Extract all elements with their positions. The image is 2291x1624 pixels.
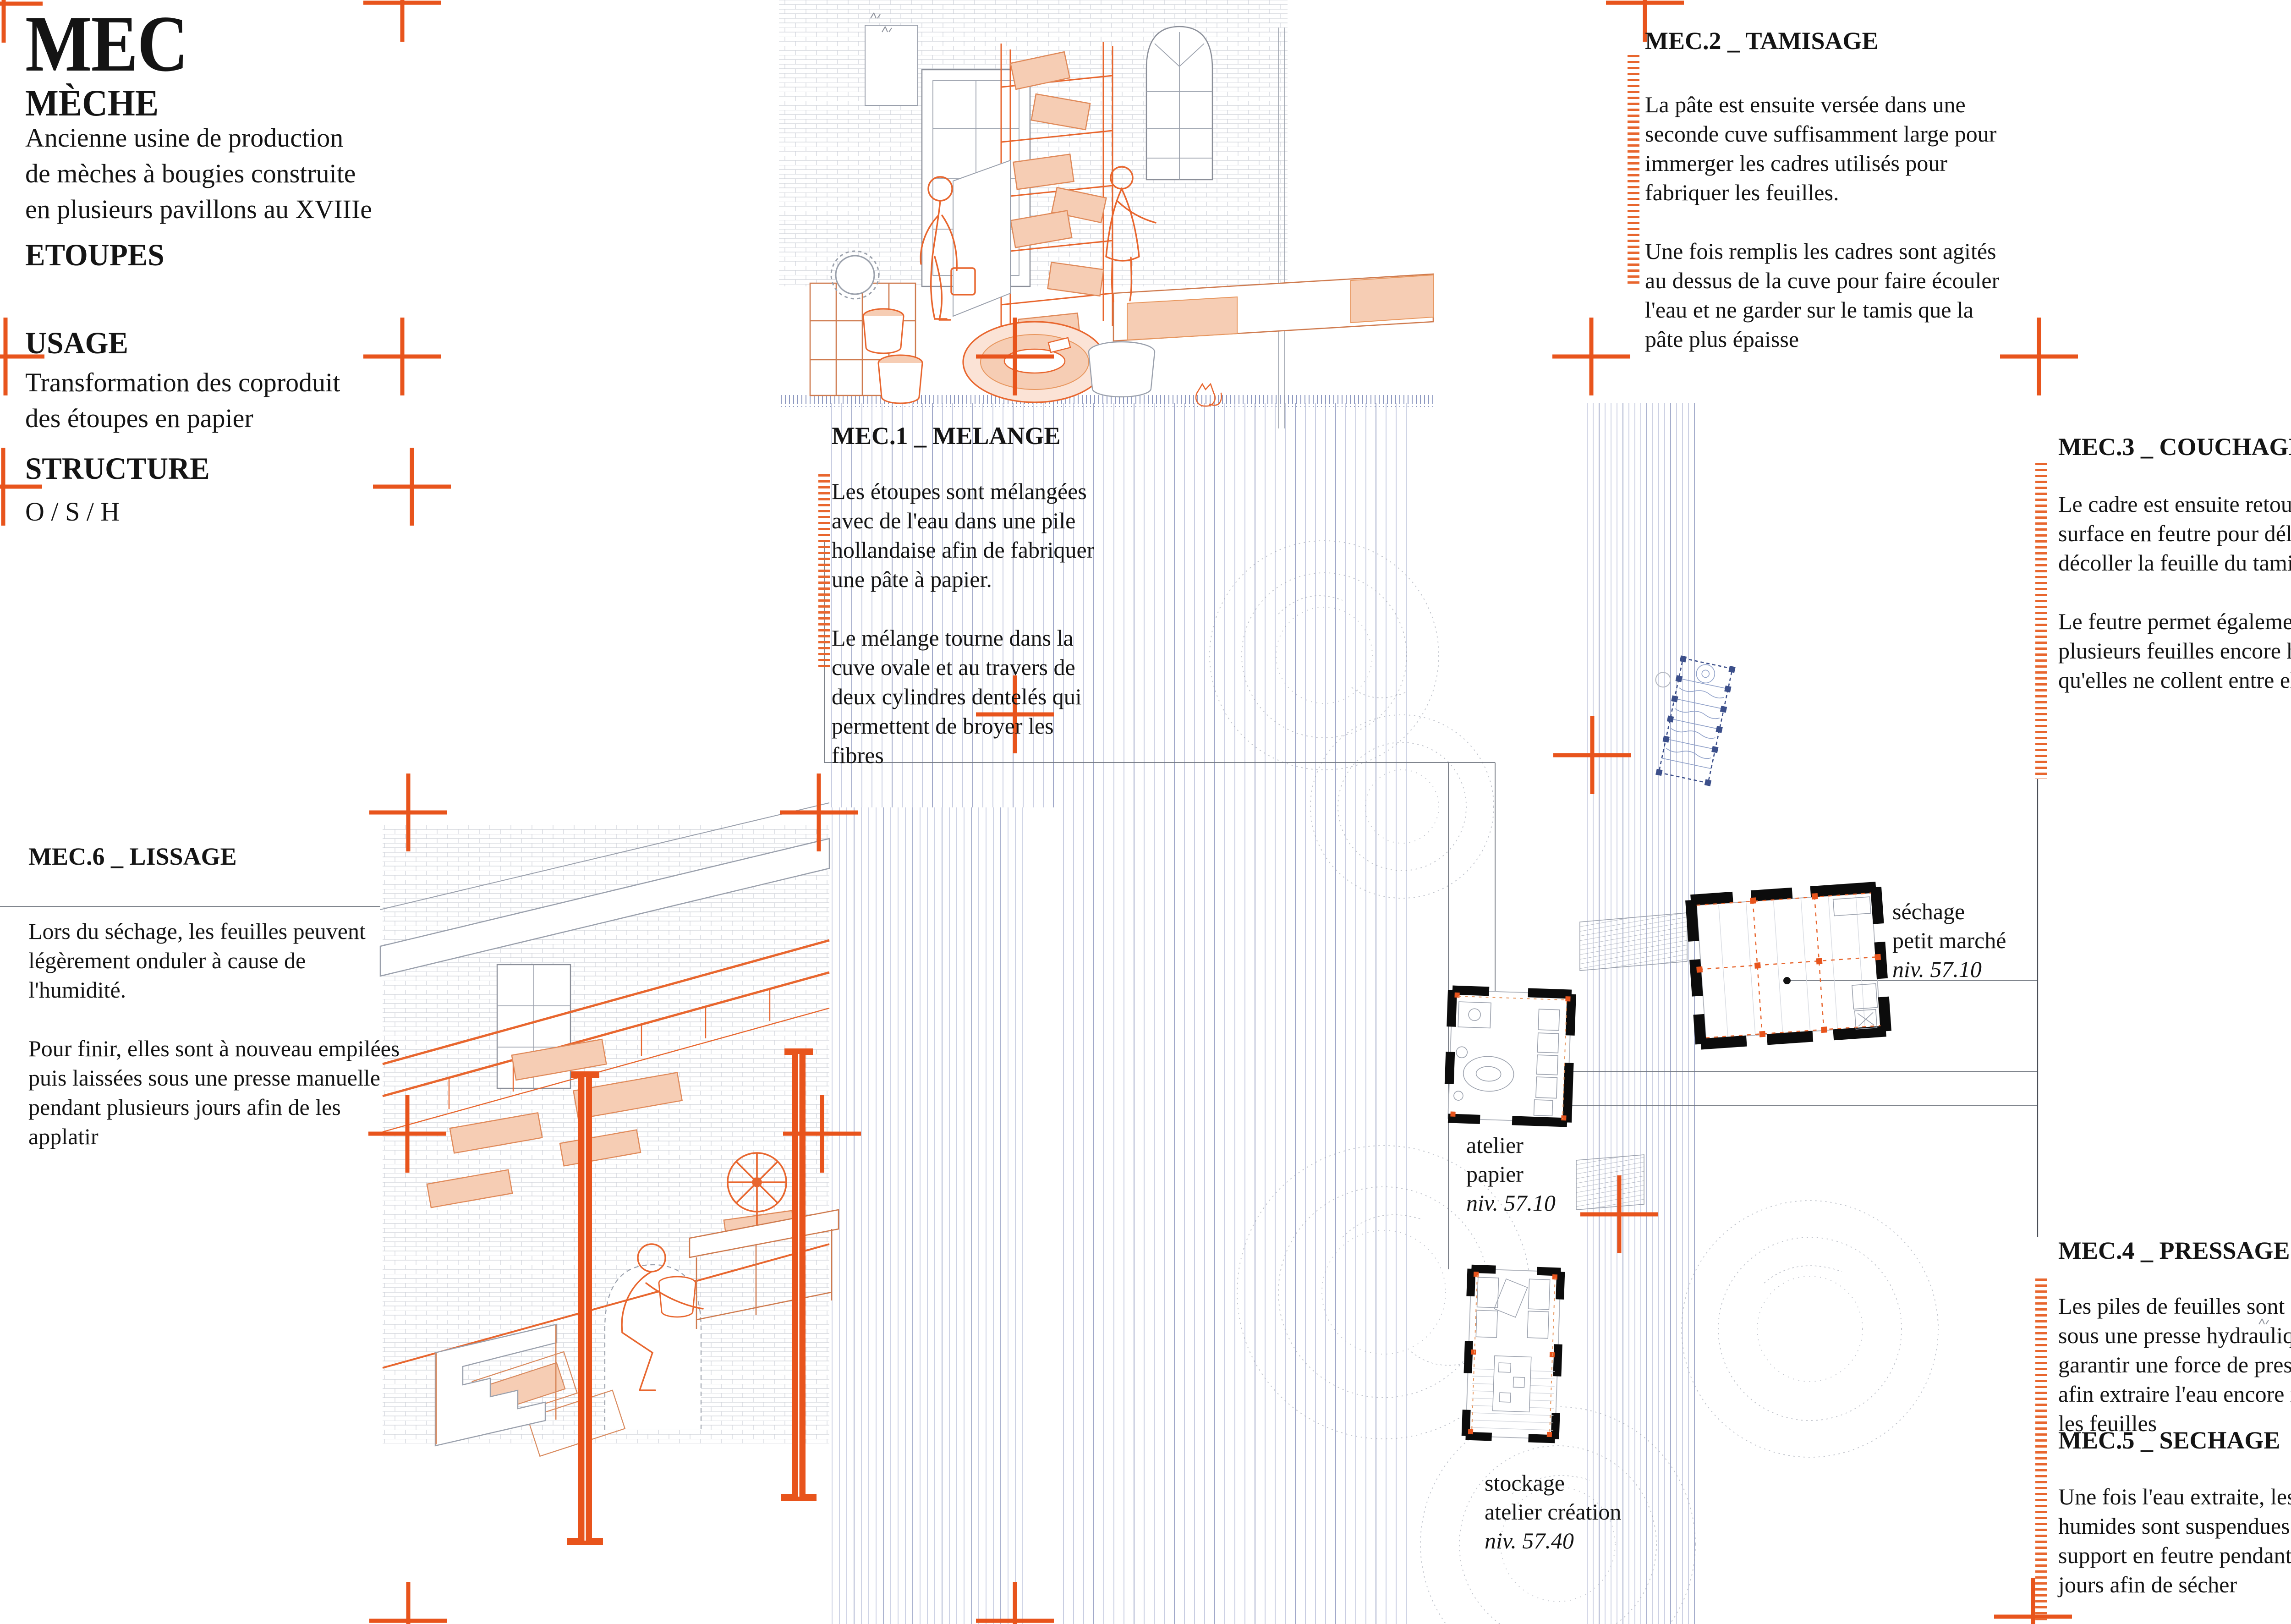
presentation-board: MEC MÈCHE Ancienne usine de production d…: [0, 0, 2291, 1624]
plan-label-sechage: séchage petit marché niv. 57.10: [1892, 897, 2006, 984]
plan-stockage-atelier-creation: [1466, 1269, 1561, 1439]
plan-label-stockage-name: stockage atelier création: [1485, 1470, 1621, 1525]
plan-label-stockage-level: niv. 57.40: [1485, 1528, 1574, 1553]
step-mec5-title: MEC.5 _ SECHAGE: [2058, 1427, 2280, 1454]
step-mec1-body: Les étoupes sont mélangées avec de l'eau…: [832, 477, 1152, 770]
plan-label-stockage: stockage atelier création niv. 57.40: [1485, 1469, 1621, 1555]
plan-label-sechage-name: séchage petit marché: [1892, 899, 2006, 953]
plan-sechage-petit-marche: [1691, 887, 1886, 1044]
press-hall-scene: [380, 803, 839, 1624]
step-mec3-body: Le cadre est ensuite retourner sur un su…: [2058, 489, 2291, 695]
project-name: MÈCHE: [25, 83, 159, 123]
plan-label-atelier-name: atelier papier: [1466, 1132, 1524, 1187]
step-mec4-title: MEC.4 _ PRESSAGE: [2058, 1237, 2290, 1264]
plan-label-atelier: atelier papier niv. 57.10: [1466, 1131, 1556, 1218]
plan-label-sechage-level: niv. 57.10: [1892, 956, 1982, 982]
step-mec3-title: MEC.3 _ COUCHAGE: [2058, 433, 2291, 460]
usage-text: Transformation des coproduit des étoupes…: [25, 365, 438, 436]
step-mec6-body: Lors du séchage, les feuilles peuvent lé…: [28, 916, 418, 1151]
register-ticks-mec4-5: [2035, 1278, 2047, 1621]
project-acronym: MEC: [25, 4, 187, 84]
register-ticks-mec2: [1628, 55, 1639, 284]
structure-label: STRUCTURE: [25, 452, 210, 485]
step-mec4-body: Les piles de feuilles sont ensuite mises…: [2058, 1291, 2291, 1438]
step-mec2-body: La pâte est ensuite versée dans une seco…: [1645, 90, 2021, 354]
material-label: ETOUPES: [25, 238, 164, 271]
step-mec2-title: MEC.2 _ TAMISAGE: [1645, 27, 1879, 54]
project-description: Ancienne usine de production de mèches à…: [25, 120, 438, 227]
workshop-scene: [779, 0, 1433, 428]
register-ticks-mec3: [2035, 463, 2047, 779]
structure-value: O / S / H: [25, 494, 120, 530]
step-mec1-title: MEC.1 _ MELANGE: [832, 422, 1061, 449]
step-mec5-body: Une fois l'eau extraite, les feuilles hu…: [2058, 1482, 2291, 1599]
usage-label: USAGE: [25, 326, 128, 359]
plan-atelier-papier: [1448, 990, 1572, 1123]
plan-label-atelier-level: niv. 57.10: [1466, 1190, 1556, 1216]
register-ticks-mec1: [818, 474, 830, 667]
step-mec6-title: MEC.6 _ LISSAGE: [28, 843, 237, 870]
